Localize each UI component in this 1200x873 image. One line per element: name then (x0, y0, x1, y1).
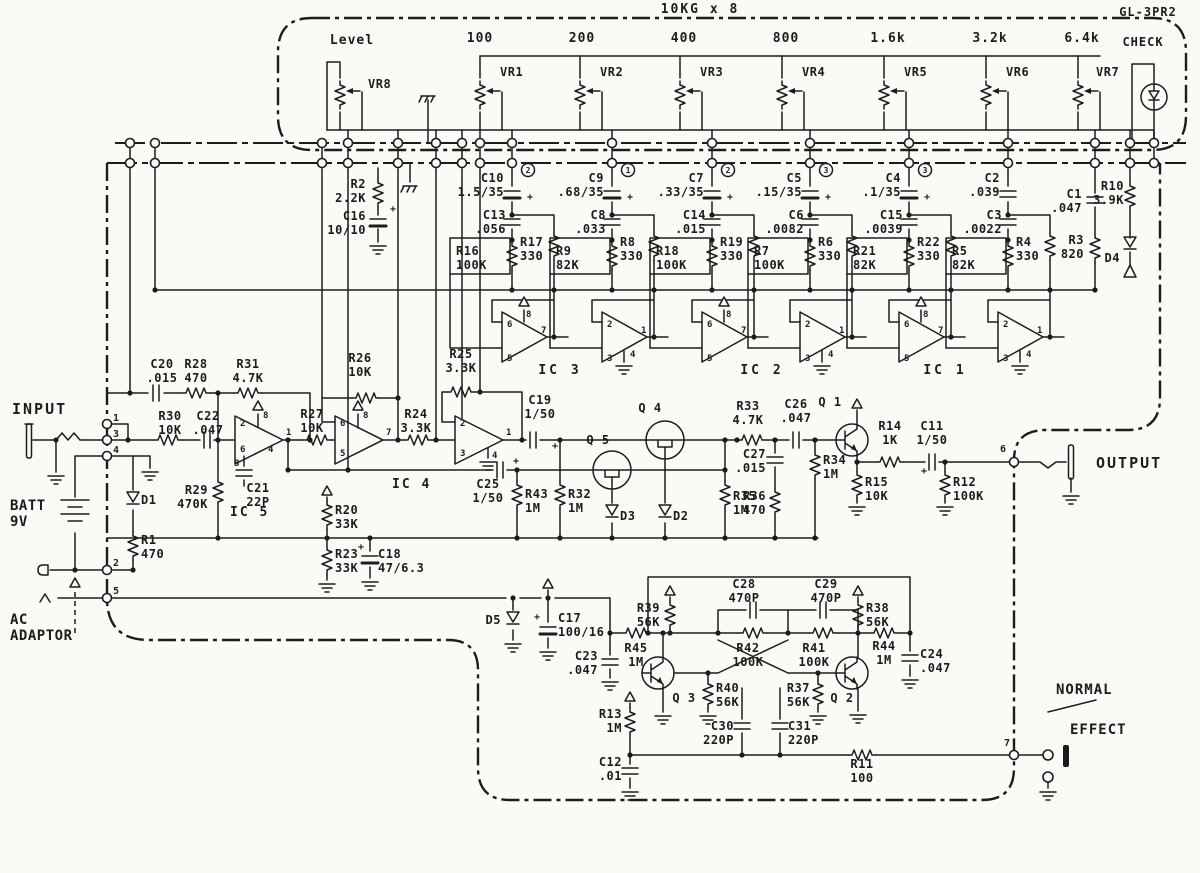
junction-dot (510, 595, 515, 600)
r32-resistor (555, 481, 565, 509)
c18-capacitor (362, 556, 378, 563)
junction-dot (812, 437, 817, 442)
c20-capacitor (153, 385, 159, 401)
label-3: 3 (234, 459, 240, 469)
label-+: + (627, 192, 634, 203)
label-82k: 82K (556, 258, 579, 272)
junction-dot (722, 437, 727, 442)
junction-dot (627, 752, 632, 757)
junction-dot (854, 459, 859, 464)
q1-transistor (836, 424, 868, 456)
label-56k: 56K (787, 695, 810, 709)
label-100k: 100K (754, 258, 785, 272)
junction-dot (785, 630, 790, 635)
junction-dot (551, 287, 556, 292)
label-7: 7 (938, 326, 944, 336)
label-r16: R16 (456, 244, 479, 258)
label-4.7k: 4.7K (233, 371, 264, 385)
junction-dot (130, 567, 135, 572)
label-1: 1 (626, 166, 631, 175)
label-6: 6 (904, 320, 910, 330)
junction-dot (722, 467, 727, 472)
junction-dot (557, 535, 562, 540)
r29-resistor (213, 478, 223, 506)
label-3: 3 (460, 449, 466, 459)
r23-resistor (322, 546, 332, 574)
label-5: 5 (507, 354, 513, 364)
label-8: 8 (526, 310, 532, 320)
junction-dot (125, 437, 130, 442)
solder-pad (508, 139, 517, 148)
junction-dot (477, 389, 482, 394)
junction-dot (215, 437, 220, 442)
label-r40: R40 (716, 681, 739, 695)
label-c15: C15 (880, 208, 903, 222)
junction-dot (609, 212, 614, 217)
vcc-symbol (519, 297, 529, 306)
normal-label: NORMAL (1056, 682, 1113, 698)
junction-dot (215, 390, 220, 395)
r3-resistor (1090, 234, 1100, 262)
r5-resistor (1003, 242, 1013, 270)
label-33k: 33K (335, 517, 358, 531)
label-c5: C5 (787, 171, 802, 185)
label-6: 6 (1000, 444, 1007, 455)
label-10k: 10K (300, 421, 323, 435)
label-1: 1 (506, 428, 512, 438)
solder-pad (1091, 139, 1100, 148)
r36-resistor (770, 488, 780, 516)
label-r31: R31 (236, 357, 259, 371)
label-1: 1 (641, 326, 647, 336)
vr2-pot (575, 81, 585, 109)
junction-dot (772, 437, 777, 442)
vcc-symbol (70, 578, 80, 587)
label-q-5: Q 5 (586, 433, 609, 447)
c2-capacitor (1000, 191, 1016, 197)
label-r2: R2 (351, 177, 366, 191)
r43-resistor (512, 481, 522, 509)
schematic-page: 10KG x 8 GL-3PR2 INPUT OUTPUT NORMAL EFF… (0, 0, 1200, 873)
label-4.7k: 4.7K (733, 413, 764, 427)
chassis-symbol (401, 186, 417, 192)
label-.047: .047 (193, 423, 224, 437)
junction-dot (609, 535, 614, 540)
junction-dot (739, 752, 744, 757)
label-r18: R18 (656, 244, 679, 258)
label-+: + (513, 456, 520, 467)
junction-dot (734, 437, 739, 442)
label-d4: D4 (1105, 251, 1120, 265)
junction-dot (906, 237, 911, 242)
label-r12: R12 (953, 475, 976, 489)
vr5-wiper-arrow (890, 88, 897, 94)
label-r32: R32 (568, 487, 591, 501)
r10-resistor (1125, 182, 1135, 210)
r33-resistor (738, 435, 766, 445)
label-c21: C21 (246, 481, 269, 495)
label-c10: C10 (481, 171, 504, 185)
label-4: 4 (113, 445, 120, 456)
c16-capacitor (370, 219, 386, 226)
label-c24: C24 (920, 647, 943, 661)
label-r20: R20 (335, 503, 358, 517)
label-2: 2 (1003, 320, 1009, 330)
solder-pad (608, 159, 617, 168)
r41-resistor (809, 628, 837, 638)
label-10k: 10K (865, 489, 888, 503)
label-c22: C22 (196, 409, 219, 423)
label-6: 6 (707, 320, 713, 330)
gnd-symbol (850, 715, 866, 723)
label-c16: C16 (343, 209, 366, 223)
gnd-symbol (937, 507, 953, 515)
solder-pad (103, 566, 112, 575)
junction-dot (514, 535, 519, 540)
vr8-wiper-arrow (346, 88, 353, 94)
band-label-3.2k: 3.2k (972, 31, 1007, 46)
solder-pad (806, 159, 815, 168)
c15-capacitor (901, 219, 917, 225)
label-1m: 1M (733, 503, 748, 517)
label-470p: 470P (811, 591, 842, 605)
label-100k: 100K (953, 489, 984, 503)
label-r1: R1 (141, 533, 156, 547)
label-56k: 56K (866, 615, 889, 629)
label-q-1: Q 1 (818, 395, 841, 409)
label-r5: R5 (952, 244, 967, 258)
vr8-label: VR8 (368, 77, 391, 91)
gnd-symbol (602, 682, 618, 690)
junction-dot (285, 467, 290, 472)
junction-dot (772, 535, 777, 540)
label-2: 2 (607, 320, 613, 330)
junction-dot (1005, 212, 1010, 217)
vr4-label: VR4 (802, 65, 825, 79)
c13-capacitor (504, 219, 520, 225)
solder-pad (151, 159, 160, 168)
junction-dot (709, 212, 714, 217)
junction-dot (906, 287, 911, 292)
label-r39: R39 (637, 601, 660, 615)
r42-resistor (739, 628, 767, 638)
solder-pad (1091, 159, 1100, 168)
junction-dot (722, 535, 727, 540)
label-c19: C19 (528, 393, 551, 407)
d2-diode (659, 505, 671, 517)
label-r3: R3 (1069, 233, 1084, 247)
q2-transistor (836, 657, 868, 689)
label-+: + (552, 441, 559, 452)
r31-resistor (234, 388, 262, 398)
label-470p: 470P (729, 591, 760, 605)
dc-plug-symbol (38, 565, 48, 575)
label-8: 8 (923, 310, 929, 320)
r9-resistor (607, 242, 617, 270)
gnd-symbol (902, 680, 918, 688)
c8-capacitor (604, 219, 620, 225)
junction-dot (395, 395, 400, 400)
vcc-symbol (625, 692, 635, 701)
label-d1: D1 (141, 493, 156, 507)
junction-dot (942, 459, 947, 464)
label-9v: 9V (10, 514, 28, 530)
vcc-symbol (543, 579, 553, 588)
r13-resistor (625, 708, 635, 736)
d4-diode (1124, 237, 1136, 249)
label-.033: .033 (575, 222, 606, 236)
junction-dot (1092, 287, 1097, 292)
label-82k: 82K (853, 258, 876, 272)
label-3: 3 (113, 429, 120, 440)
r14-resistor (876, 457, 904, 467)
gnd-symbol (142, 472, 158, 480)
label-7: 7 (1004, 738, 1011, 749)
label-r8: R8 (620, 235, 635, 249)
label-3: 3 (923, 166, 928, 175)
label-1/50: 1/50 (917, 433, 948, 447)
label-r33: R33 (736, 399, 759, 413)
junction-dot (709, 287, 714, 292)
c27-capacitor (767, 457, 783, 463)
label-5: 5 (904, 354, 910, 364)
junction-dot (660, 630, 665, 635)
solder-pad (476, 159, 485, 168)
junction-dot (807, 237, 812, 242)
label-4: 4 (630, 350, 636, 360)
junction-dot (509, 212, 514, 217)
c24-capacitor (902, 655, 918, 661)
label-r24: R24 (404, 407, 427, 421)
c4-capacitor (901, 191, 917, 198)
junction-dot (906, 212, 911, 217)
junction-dot (127, 390, 132, 395)
solder-pad (458, 139, 467, 148)
junction-dot (215, 535, 220, 540)
c12-capacitor (622, 768, 638, 774)
gnd-symbol (810, 716, 826, 724)
vr6-pot (981, 81, 991, 109)
label-10/10: 10/10 (327, 223, 366, 237)
label-.1/35: .1/35 (862, 185, 901, 199)
r39-resistor (665, 601, 675, 629)
junction-dot (645, 630, 650, 635)
label-r13: R13 (599, 707, 622, 721)
solder-pad (458, 159, 467, 168)
label-c30: C30 (711, 719, 734, 733)
label-r26: R26 (348, 351, 371, 365)
label-r41: R41 (802, 641, 825, 655)
label-6: 6 (340, 419, 346, 429)
label-10k: 10K (158, 423, 181, 437)
vr3-label: VR3 (700, 65, 723, 79)
solder-pad (151, 139, 160, 148)
solder-pad (318, 159, 327, 168)
solder-pad (1010, 751, 1019, 760)
label-7: 7 (386, 428, 392, 438)
label-3.3k: 3.3K (446, 361, 477, 375)
label-2: 2 (726, 166, 731, 175)
c31-capacitor (772, 723, 788, 729)
label-r22: R22 (917, 235, 940, 249)
solder-pad (1150, 159, 1159, 168)
label-2: 2 (526, 166, 531, 175)
label-+: + (358, 542, 365, 553)
board-code-label: GL-3PR2 (1119, 5, 1177, 19)
label-3.3k: 3.3K (401, 421, 432, 435)
input-jack (27, 424, 32, 458)
label-3: 3 (1003, 354, 1009, 364)
vr5-pot (879, 81, 889, 109)
label-1/50: 1/50 (525, 407, 556, 421)
circuit-wiring (25, 56, 1154, 788)
r28-resistor (182, 388, 210, 398)
junction-dot (307, 437, 312, 442)
label-+: + (390, 204, 397, 215)
label-q-2: Q 2 (830, 691, 853, 705)
c26-capacitor (793, 432, 799, 448)
r21-resistor (904, 242, 914, 270)
q5-transistor (593, 451, 631, 489)
band-label-100: 100 (467, 31, 493, 46)
label-.15/35: .15/35 (756, 185, 802, 199)
label-820: 820 (1061, 247, 1084, 261)
vr2-label: VR2 (600, 65, 623, 79)
label-c17: C17 (558, 611, 581, 625)
label-c13: C13 (483, 208, 506, 222)
band-label-1.6k: 1.6k (870, 31, 905, 46)
q4-transistor (646, 421, 684, 459)
label-+: + (921, 466, 928, 477)
junction-dot (709, 237, 714, 242)
effect-label: EFFECT (1070, 722, 1127, 738)
label-c20: C20 (150, 357, 173, 371)
solder-pad (344, 139, 353, 148)
label-c23: C23 (575, 649, 598, 663)
generated-components: C101.5/35C13.056R16100KR17330+26578C9.68… (10, 31, 1167, 800)
label-33k: 33K (335, 561, 358, 575)
label-1k: 1K (882, 433, 898, 447)
solder-pad (126, 139, 135, 148)
label-c1: C1 (1067, 187, 1082, 201)
r27-resistor (303, 435, 331, 445)
solder-pad (394, 159, 403, 168)
label-c3: C3 (987, 208, 1002, 222)
label-r38: R38 (866, 601, 889, 615)
label-c26: C26 (784, 397, 807, 411)
vcc-symbol (322, 486, 332, 495)
band-label-6.4k: 6.4k (1064, 31, 1099, 46)
c25-capacitor (497, 462, 503, 478)
r7-resistor (805, 242, 815, 270)
label-1m: 1M (823, 467, 838, 481)
junction-dot (948, 287, 953, 292)
bus-lines (107, 143, 1186, 163)
label-ic-1: IC 1 (923, 363, 966, 378)
gnd-symbol (1040, 792, 1056, 800)
label-.33/35: .33/35 (658, 185, 704, 199)
c6-capacitor (802, 219, 818, 225)
ac-wave-symbol (40, 594, 50, 602)
label-r45: R45 (624, 641, 647, 655)
label-6: 6 (507, 320, 513, 330)
junction-dot (651, 334, 656, 339)
label-r11: R11 (850, 757, 873, 771)
gnd-symbol (48, 476, 64, 484)
junction-dot (345, 467, 350, 472)
label-c6: C6 (789, 208, 804, 222)
junction-dot (849, 334, 854, 339)
label-c11: C11 (920, 419, 943, 433)
junction-dot (815, 670, 820, 675)
label-1m: 1M (607, 721, 622, 735)
r4-resistor (1045, 232, 1055, 260)
label-22p: 22P (246, 495, 269, 509)
label-7: 7 (741, 326, 747, 336)
label-r9: R9 (556, 244, 571, 258)
vcc-symbol (853, 586, 863, 595)
label-c18: C18 (378, 547, 401, 561)
input-label: INPUT (12, 400, 67, 418)
junction-dot (545, 595, 550, 600)
solder-pad (318, 139, 327, 148)
d5-diode (507, 612, 519, 624)
vcc-symbol (665, 586, 675, 595)
label-d5: D5 (486, 613, 501, 627)
label-r19: R19 (720, 235, 743, 249)
junction-dot (72, 567, 77, 572)
solder-pad (508, 159, 517, 168)
junction-dot (751, 287, 756, 292)
footswitch-jack (1063, 745, 1069, 767)
label-check: CHECK (1122, 35, 1163, 49)
solder-pad (608, 139, 617, 148)
label-+: + (825, 192, 832, 203)
label-.0082: .0082 (765, 222, 804, 236)
check-led (1141, 84, 1167, 110)
vr1-label: VR1 (500, 65, 523, 79)
c10-capacitor (504, 191, 520, 198)
label-100k: 100K (456, 258, 487, 272)
solder-pad (344, 159, 353, 168)
label-330: 330 (720, 249, 743, 263)
label-100k: 100K (656, 258, 687, 272)
junction-dot (812, 535, 817, 540)
label-c29: C29 (814, 577, 837, 591)
label-1: 1 (286, 428, 292, 438)
solder-pad (432, 139, 441, 148)
junction-dot (551, 334, 556, 339)
label-1/50: 1/50 (473, 491, 504, 505)
r25-resistor (447, 387, 475, 397)
label-1: 1 (113, 413, 120, 424)
pot-spec-label: 10KG x 8 (661, 2, 740, 17)
label-c31: C31 (788, 719, 811, 733)
label-+: + (534, 612, 541, 623)
label-2: 2 (460, 419, 466, 429)
label-100k: 100K (733, 655, 764, 669)
r37-resistor (813, 680, 823, 708)
junction-dot (1047, 334, 1052, 339)
junction-dot (751, 334, 756, 339)
d3-diode (606, 505, 618, 517)
junction-dot (519, 437, 524, 442)
vr7-label: VR7 (1096, 65, 1119, 79)
label-.047: .047 (567, 663, 598, 677)
junction-dot (715, 630, 720, 635)
label-r28: R28 (184, 357, 207, 371)
output-jack (1069, 445, 1074, 479)
